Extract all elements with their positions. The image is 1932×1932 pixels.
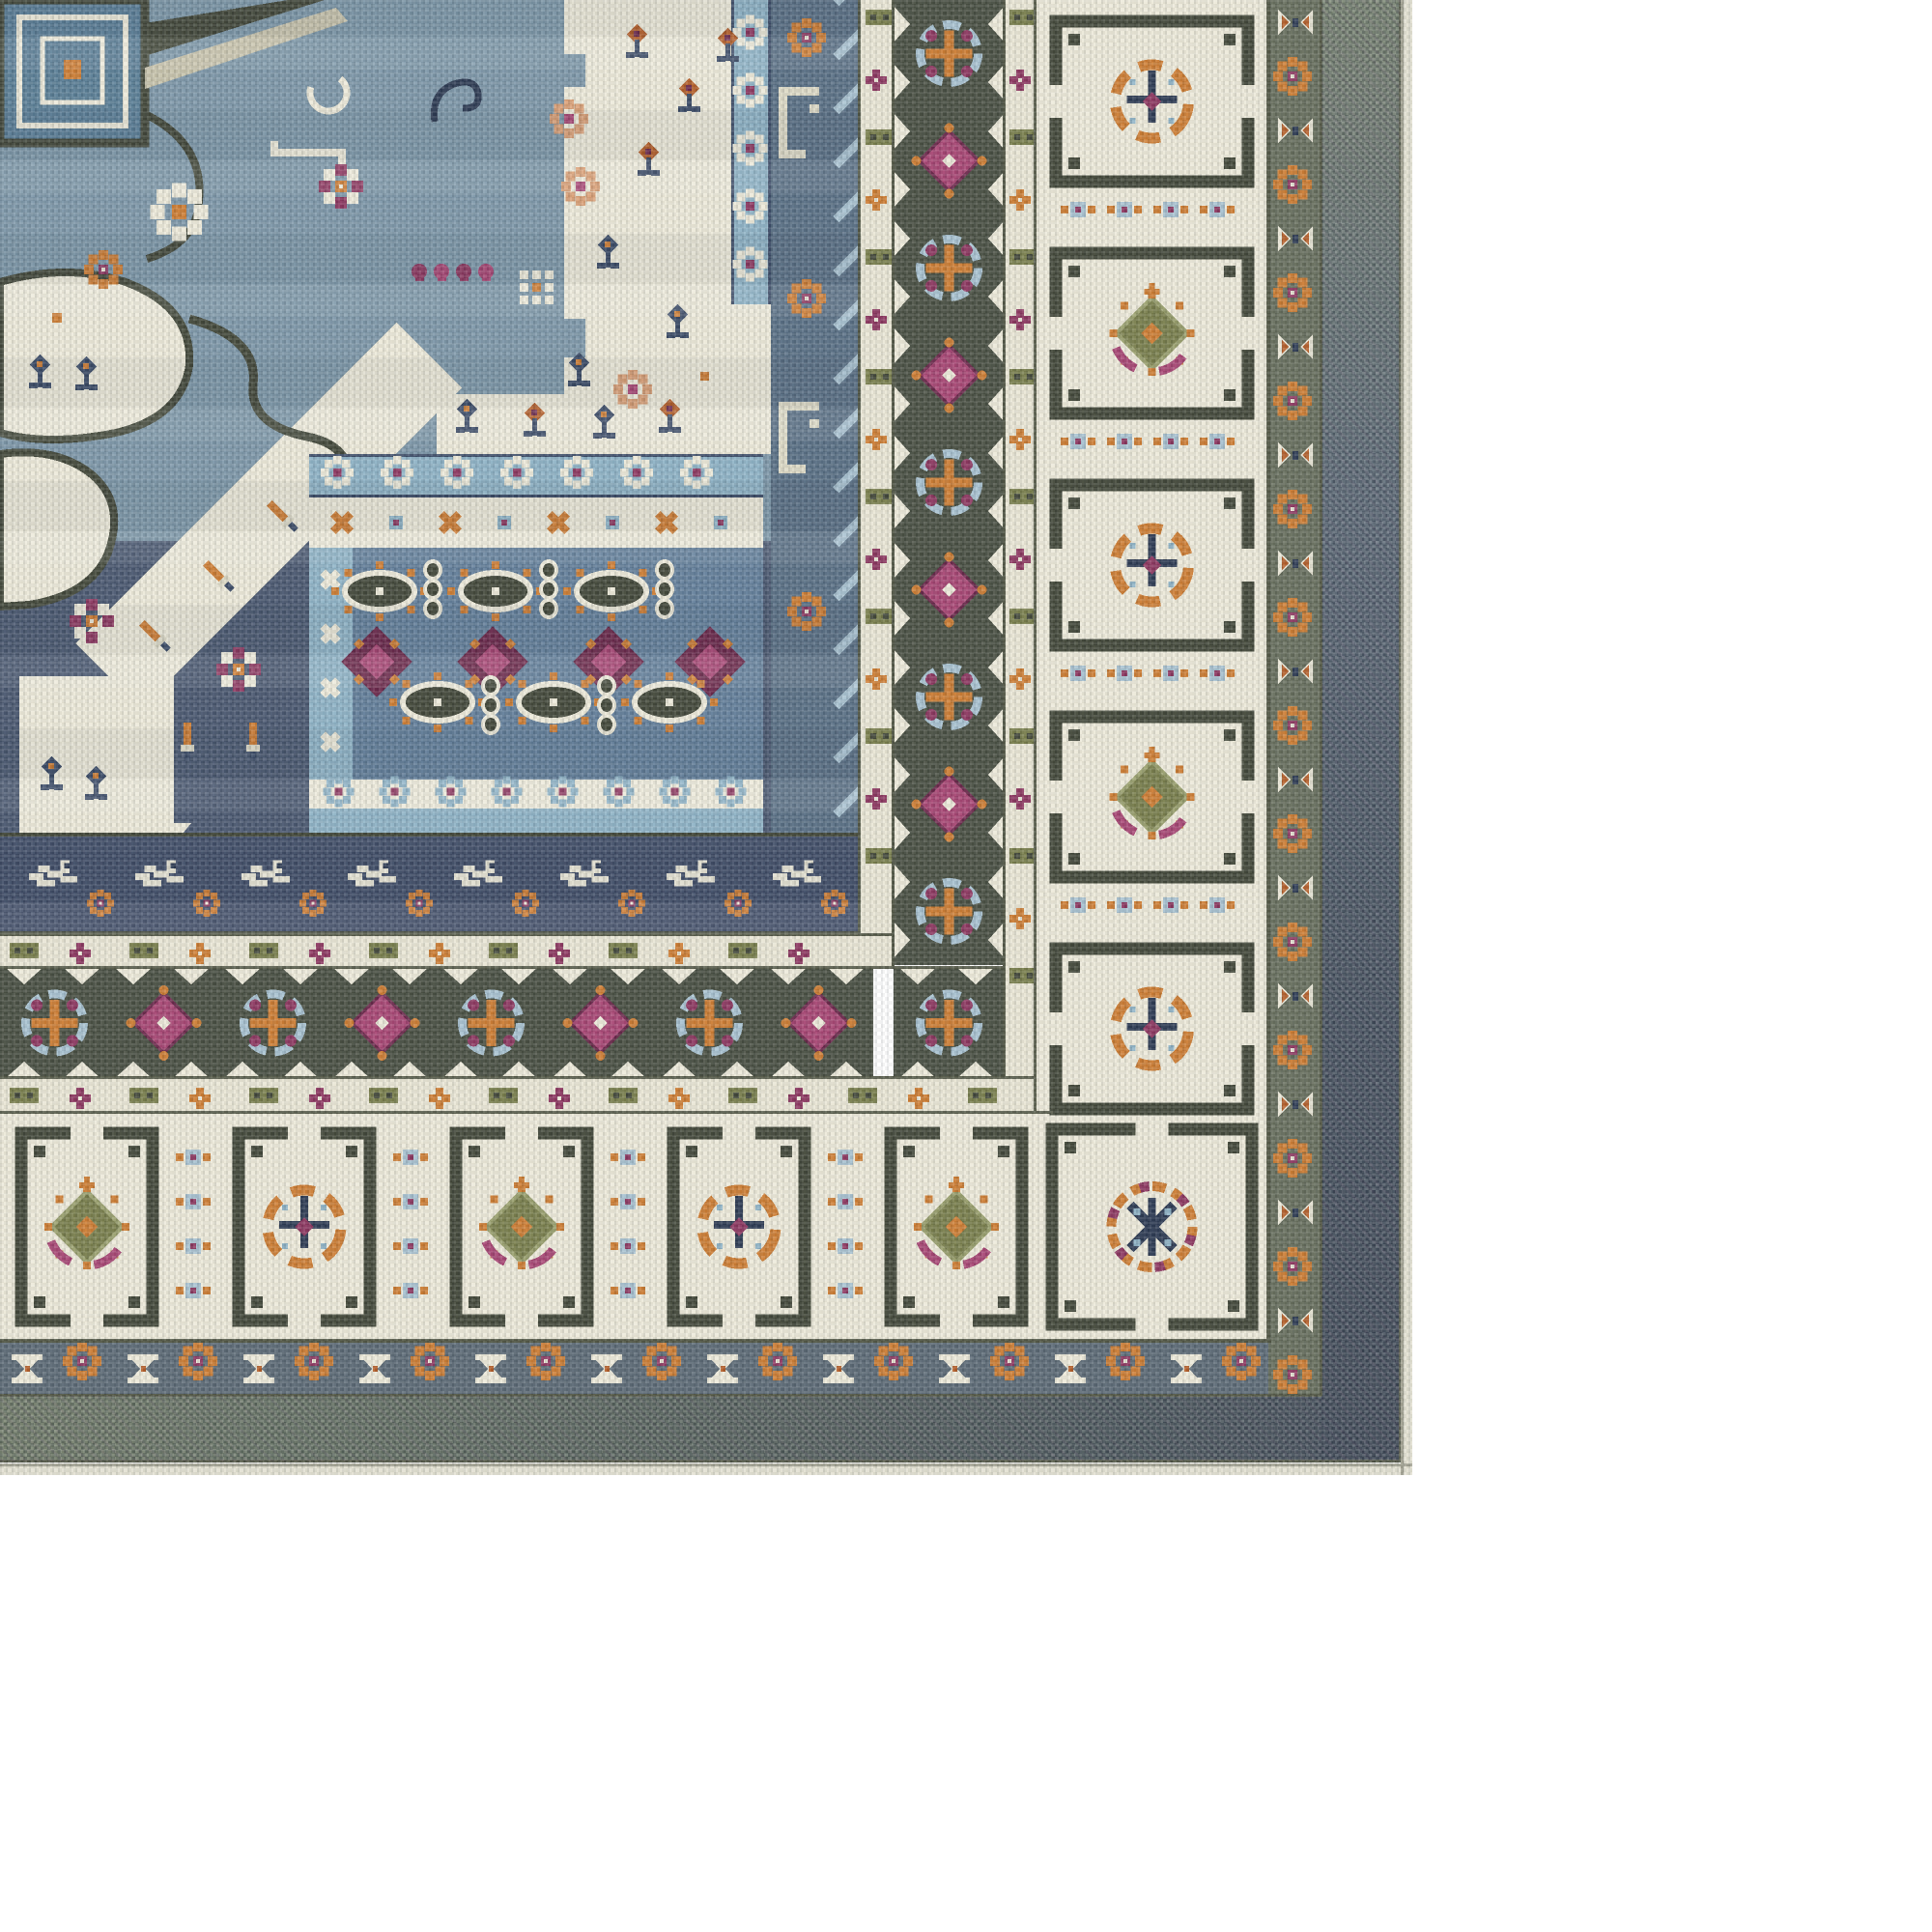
rug-artwork xyxy=(0,0,1412,1475)
rug xyxy=(0,0,1412,1475)
photo-canvas xyxy=(0,0,1932,1932)
